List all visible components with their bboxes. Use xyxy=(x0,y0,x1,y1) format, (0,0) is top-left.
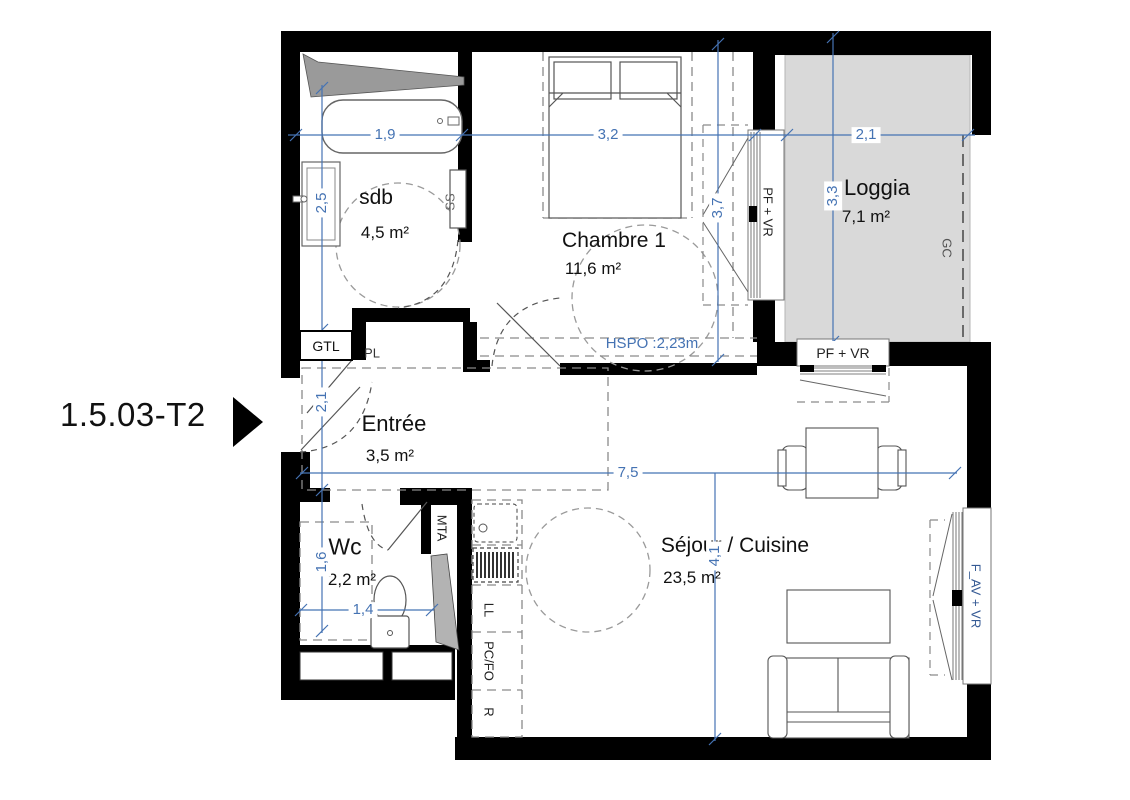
room-label-sdb: sdb xyxy=(359,186,393,210)
floorplan-page: sdb 4,5 m² Chambre 1 11,6 m² Loggia 7,1 … xyxy=(0,0,1130,800)
room-label-entree: Entrée xyxy=(362,411,427,437)
room-area-chambre: 11,6 m² xyxy=(565,259,621,279)
ll-label: LL xyxy=(482,603,497,617)
pl-label: PL xyxy=(364,346,380,361)
r-label: R xyxy=(482,707,497,716)
room-area-wc: 2,2 m² xyxy=(328,570,376,590)
pcfo-label: PC/FO xyxy=(482,641,497,681)
window-sejour-label: F_AV + VR xyxy=(969,564,984,628)
wall-niches xyxy=(300,652,452,680)
coffee-table xyxy=(787,590,890,643)
ss-label: SS xyxy=(443,193,458,210)
unit-label: 1.5.03-T2 xyxy=(60,396,206,434)
dim-sdb-width: 1,9 xyxy=(371,127,400,143)
gtl-box: GTL xyxy=(299,330,353,361)
room-label-sejour: Séjour / Cuisine xyxy=(661,534,809,558)
gc-label: GC xyxy=(940,238,955,258)
room-label-chambre: Chambre 1 xyxy=(562,229,666,253)
dim-wc-width: 1,4 xyxy=(349,602,378,618)
dim-chambre-width: 3,2 xyxy=(594,127,623,143)
mta-shaft-wedge xyxy=(431,554,459,650)
room-label-loggia: Loggia xyxy=(844,175,910,201)
room-label-wc: Wc xyxy=(328,534,361,561)
duct-shaft-wedge xyxy=(303,54,464,97)
mta-label: MTA xyxy=(435,515,450,541)
dim-loggia-depth: 3,3 xyxy=(824,182,842,211)
window-loggia-text: PF + VR xyxy=(816,345,869,361)
room-area-sdb: 4,5 m² xyxy=(361,223,409,243)
dim-chambre-depth: 3,7 xyxy=(709,194,727,223)
ceiling-height-note: HSPO :2,23m xyxy=(602,336,703,352)
room-area-entree: 3,5 m² xyxy=(366,446,414,466)
dim-entree-depth: 2,1 xyxy=(313,388,331,417)
dim-loggia-width: 2,1 xyxy=(852,127,881,143)
triangle-marker-icon xyxy=(233,397,263,447)
window-loggia-label: PF + VR xyxy=(798,341,888,365)
dim-sejour-depth: 4,1 xyxy=(706,542,724,571)
sofa xyxy=(768,656,909,738)
dim-wc-depth: 1,6 xyxy=(313,548,331,577)
kitchen-block xyxy=(473,504,518,582)
dim-sdb-depth: 2,5 xyxy=(313,189,331,218)
dining-table xyxy=(778,428,906,498)
gtl-label: GTL xyxy=(312,338,339,354)
dim-sejour-width: 7,5 xyxy=(614,465,643,481)
room-area-sejour: 23,5 m² xyxy=(663,568,721,588)
window-chambre-label: PF + VR xyxy=(761,187,776,237)
room-area-loggia: 7,1 m² xyxy=(842,207,890,227)
dashed-guides xyxy=(300,52,757,737)
